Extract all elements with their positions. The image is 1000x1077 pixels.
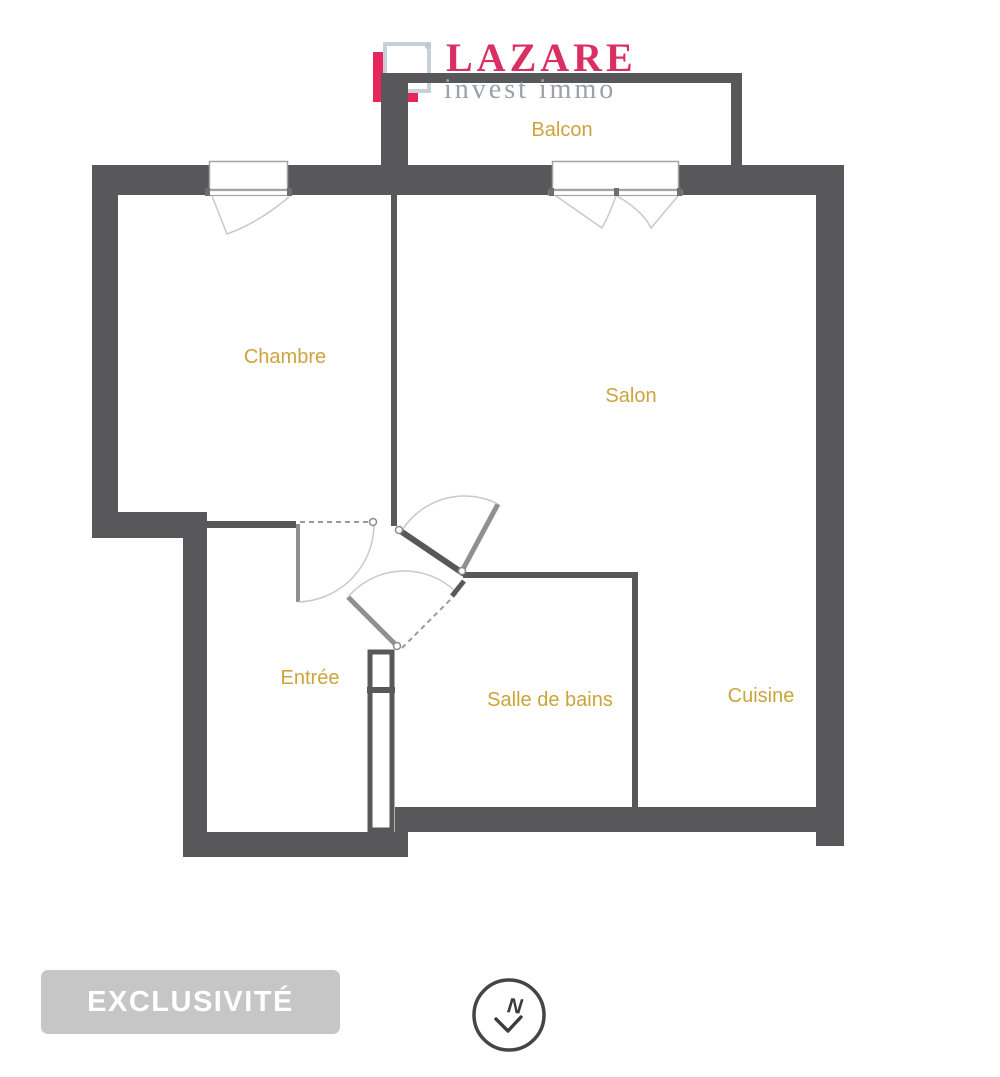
- salon-door-closed-leaf: [399, 530, 464, 574]
- wall-left: [92, 165, 118, 538]
- duct-divider: [367, 687, 395, 693]
- wall-balcony-right: [731, 73, 742, 165]
- bath-door-opening: [402, 592, 458, 648]
- salon-door-leaf: [462, 504, 498, 571]
- wall-bottom-bridge: [395, 807, 408, 857]
- window-jamb: [205, 188, 210, 196]
- window-jamb: [287, 188, 292, 196]
- hinge-dot: [396, 527, 403, 534]
- room-label-entree: Entrée: [281, 667, 340, 689]
- chambre-window-sill: [206, 191, 291, 196]
- chambre-window: [210, 162, 288, 190]
- bath-door-arc: [348, 571, 455, 597]
- walls: [92, 73, 844, 857]
- duct-outline: [370, 652, 392, 830]
- balcony-window-swing-right: [617, 196, 678, 228]
- wall-balcony-left: [381, 73, 408, 165]
- logo-dot: [425, 43, 431, 49]
- chambre-window-swing: [212, 196, 289, 234]
- wall-bath-top: [463, 572, 638, 578]
- exclusivity-badge: EXCLUSIVITÉ: [41, 970, 340, 1034]
- wall-entree-bottom: [183, 832, 408, 857]
- wall-right: [816, 165, 844, 846]
- window-jamb: [549, 188, 554, 196]
- exclusivity-badge-label: EXCLUSIVITÉ: [87, 986, 294, 1019]
- hinge-dot: [370, 519, 377, 526]
- room-label-chambre: Chambre: [244, 346, 326, 368]
- hinge-dot: [459, 568, 466, 575]
- floorplan-page: Balcon Chambre Salon Entrée Salle de bai…: [0, 0, 1000, 1077]
- bath-door-leaf: [348, 597, 396, 645]
- room-labels: Balcon Chambre Salon Entrée Salle de bai…: [244, 119, 794, 711]
- window-jamb: [614, 188, 619, 196]
- wall-bottom-main: [395, 807, 818, 832]
- wall-bath-right: [632, 572, 638, 807]
- brand-tagline: invest immo: [444, 74, 616, 105]
- wall-top: [92, 165, 844, 195]
- duct-column: [367, 652, 395, 830]
- room-label-salle-de-bains: Salle de bains: [487, 689, 613, 711]
- balcony-window: [553, 162, 679, 190]
- bath-door-stub-wall: [452, 581, 464, 596]
- room-label-salon: Salon: [605, 385, 656, 407]
- compass-icon: N: [474, 980, 544, 1050]
- wall-chambre-bottom: [207, 521, 296, 528]
- balcony-window-swing-left: [556, 196, 616, 228]
- room-label-balcon: Balcon: [531, 119, 592, 141]
- room-label-cuisine: Cuisine: [728, 685, 795, 707]
- window-jamb: [677, 188, 682, 196]
- floorplan-drawing: Balcon Chambre Salon Entrée Salle de bai…: [0, 0, 1000, 1077]
- chambre-door-arc: [298, 523, 374, 602]
- brand-logo-text: LAZARE invest immo: [444, 35, 637, 105]
- hinge-dot: [394, 643, 401, 650]
- wall-divider-chambre-salon: [391, 195, 397, 526]
- wall-entree-left: [183, 512, 207, 857]
